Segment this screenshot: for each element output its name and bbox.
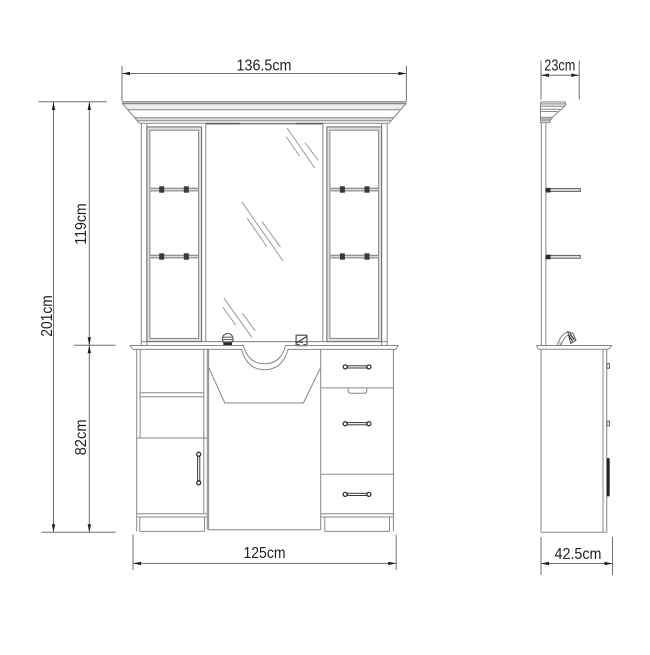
svg-text:82cm: 82cm (73, 419, 90, 455)
svg-text:125cm: 125cm (244, 545, 286, 562)
svg-text:42.5cm: 42.5cm (555, 546, 602, 563)
svg-text:136.5cm: 136.5cm (237, 57, 292, 74)
svg-text:119cm: 119cm (73, 203, 90, 245)
svg-text:23cm: 23cm (544, 57, 575, 74)
svg-text:201cm: 201cm (39, 295, 56, 337)
